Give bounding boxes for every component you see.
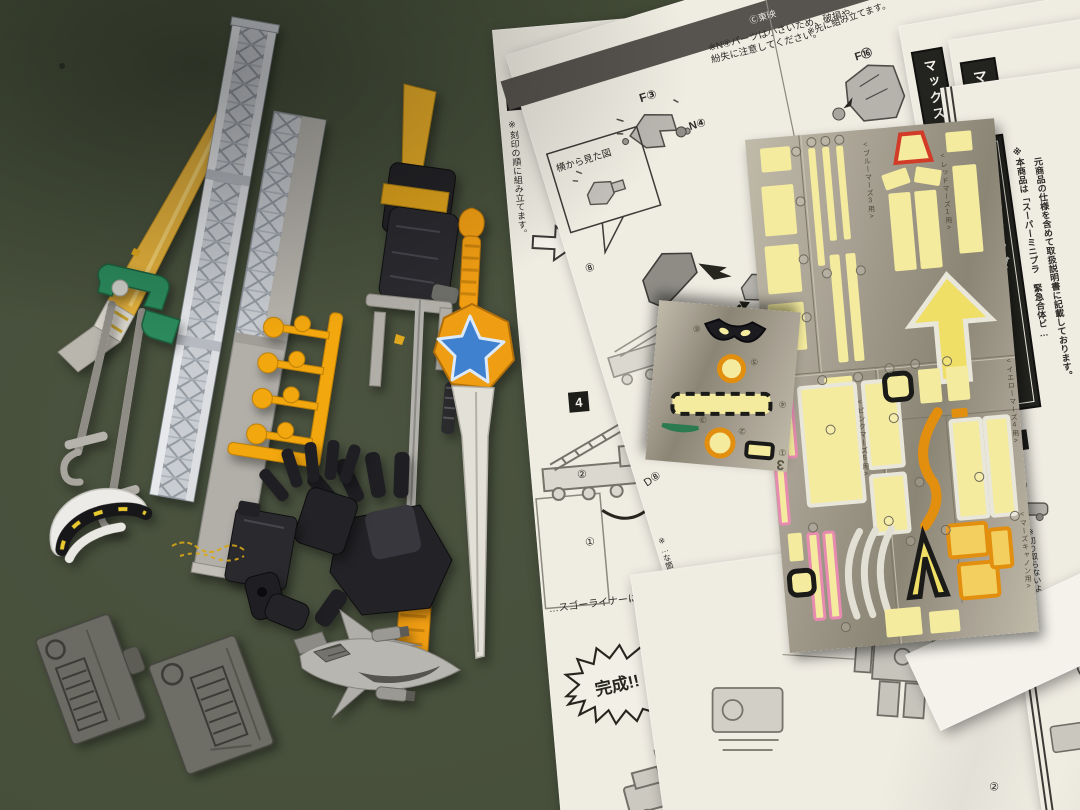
photo-model-kit-scene: 8 ※刻印の順に組み立てます。 4 ② ① …スゴーライナーに格納しておきます。 — [0, 0, 1080, 810]
white-visor-part — [44, 483, 153, 561]
gray-ladder-box-2 — [148, 635, 274, 775]
gray-ladder-box-1 — [35, 608, 162, 745]
parts-layer — [0, 0, 1080, 810]
black-elbow-part — [243, 571, 312, 633]
black-cannon-part — [378, 84, 460, 306]
gray-jet-part — [294, 610, 460, 718]
